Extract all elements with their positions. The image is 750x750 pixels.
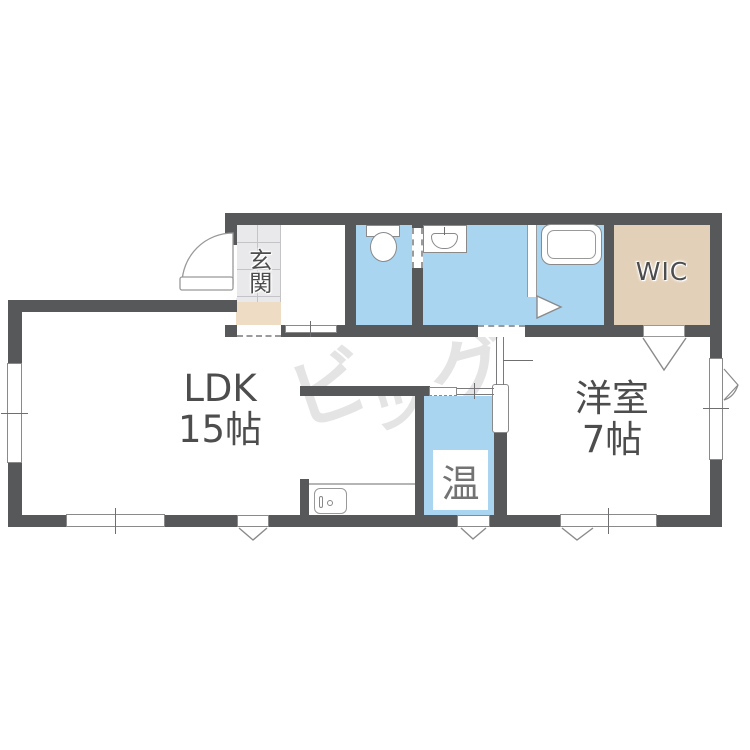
bathroom-door-swing-icon — [537, 296, 561, 318]
vent-mark-icon — [461, 528, 486, 539]
casement-window-icon — [724, 385, 738, 400]
water-heater-box: 温 — [433, 450, 488, 510]
western-room-label: 洋室 7帖 — [528, 378, 696, 461]
western-room-size: 7帖 — [528, 419, 696, 460]
casement-window-icon — [724, 369, 738, 400]
ldk-name: LDK — [135, 368, 305, 409]
entrance-door-leaf-icon — [180, 277, 233, 290]
entrance-label: 玄関 — [244, 239, 270, 303]
wic-label: WIC — [612, 258, 712, 286]
ldk-label: LDK 15帖 — [135, 368, 305, 451]
ldk-size: 15帖 — [135, 409, 305, 450]
wic-folding-door-icon — [643, 338, 686, 370]
vent-mark-icon — [562, 528, 593, 540]
vent-mark-icon — [239, 528, 267, 540]
water-heater-label: 温 — [441, 453, 479, 508]
western-room-name: 洋室 — [528, 378, 696, 419]
door-symbols-layer — [0, 0, 750, 750]
floor-plan: ビッグ — [0, 0, 750, 750]
